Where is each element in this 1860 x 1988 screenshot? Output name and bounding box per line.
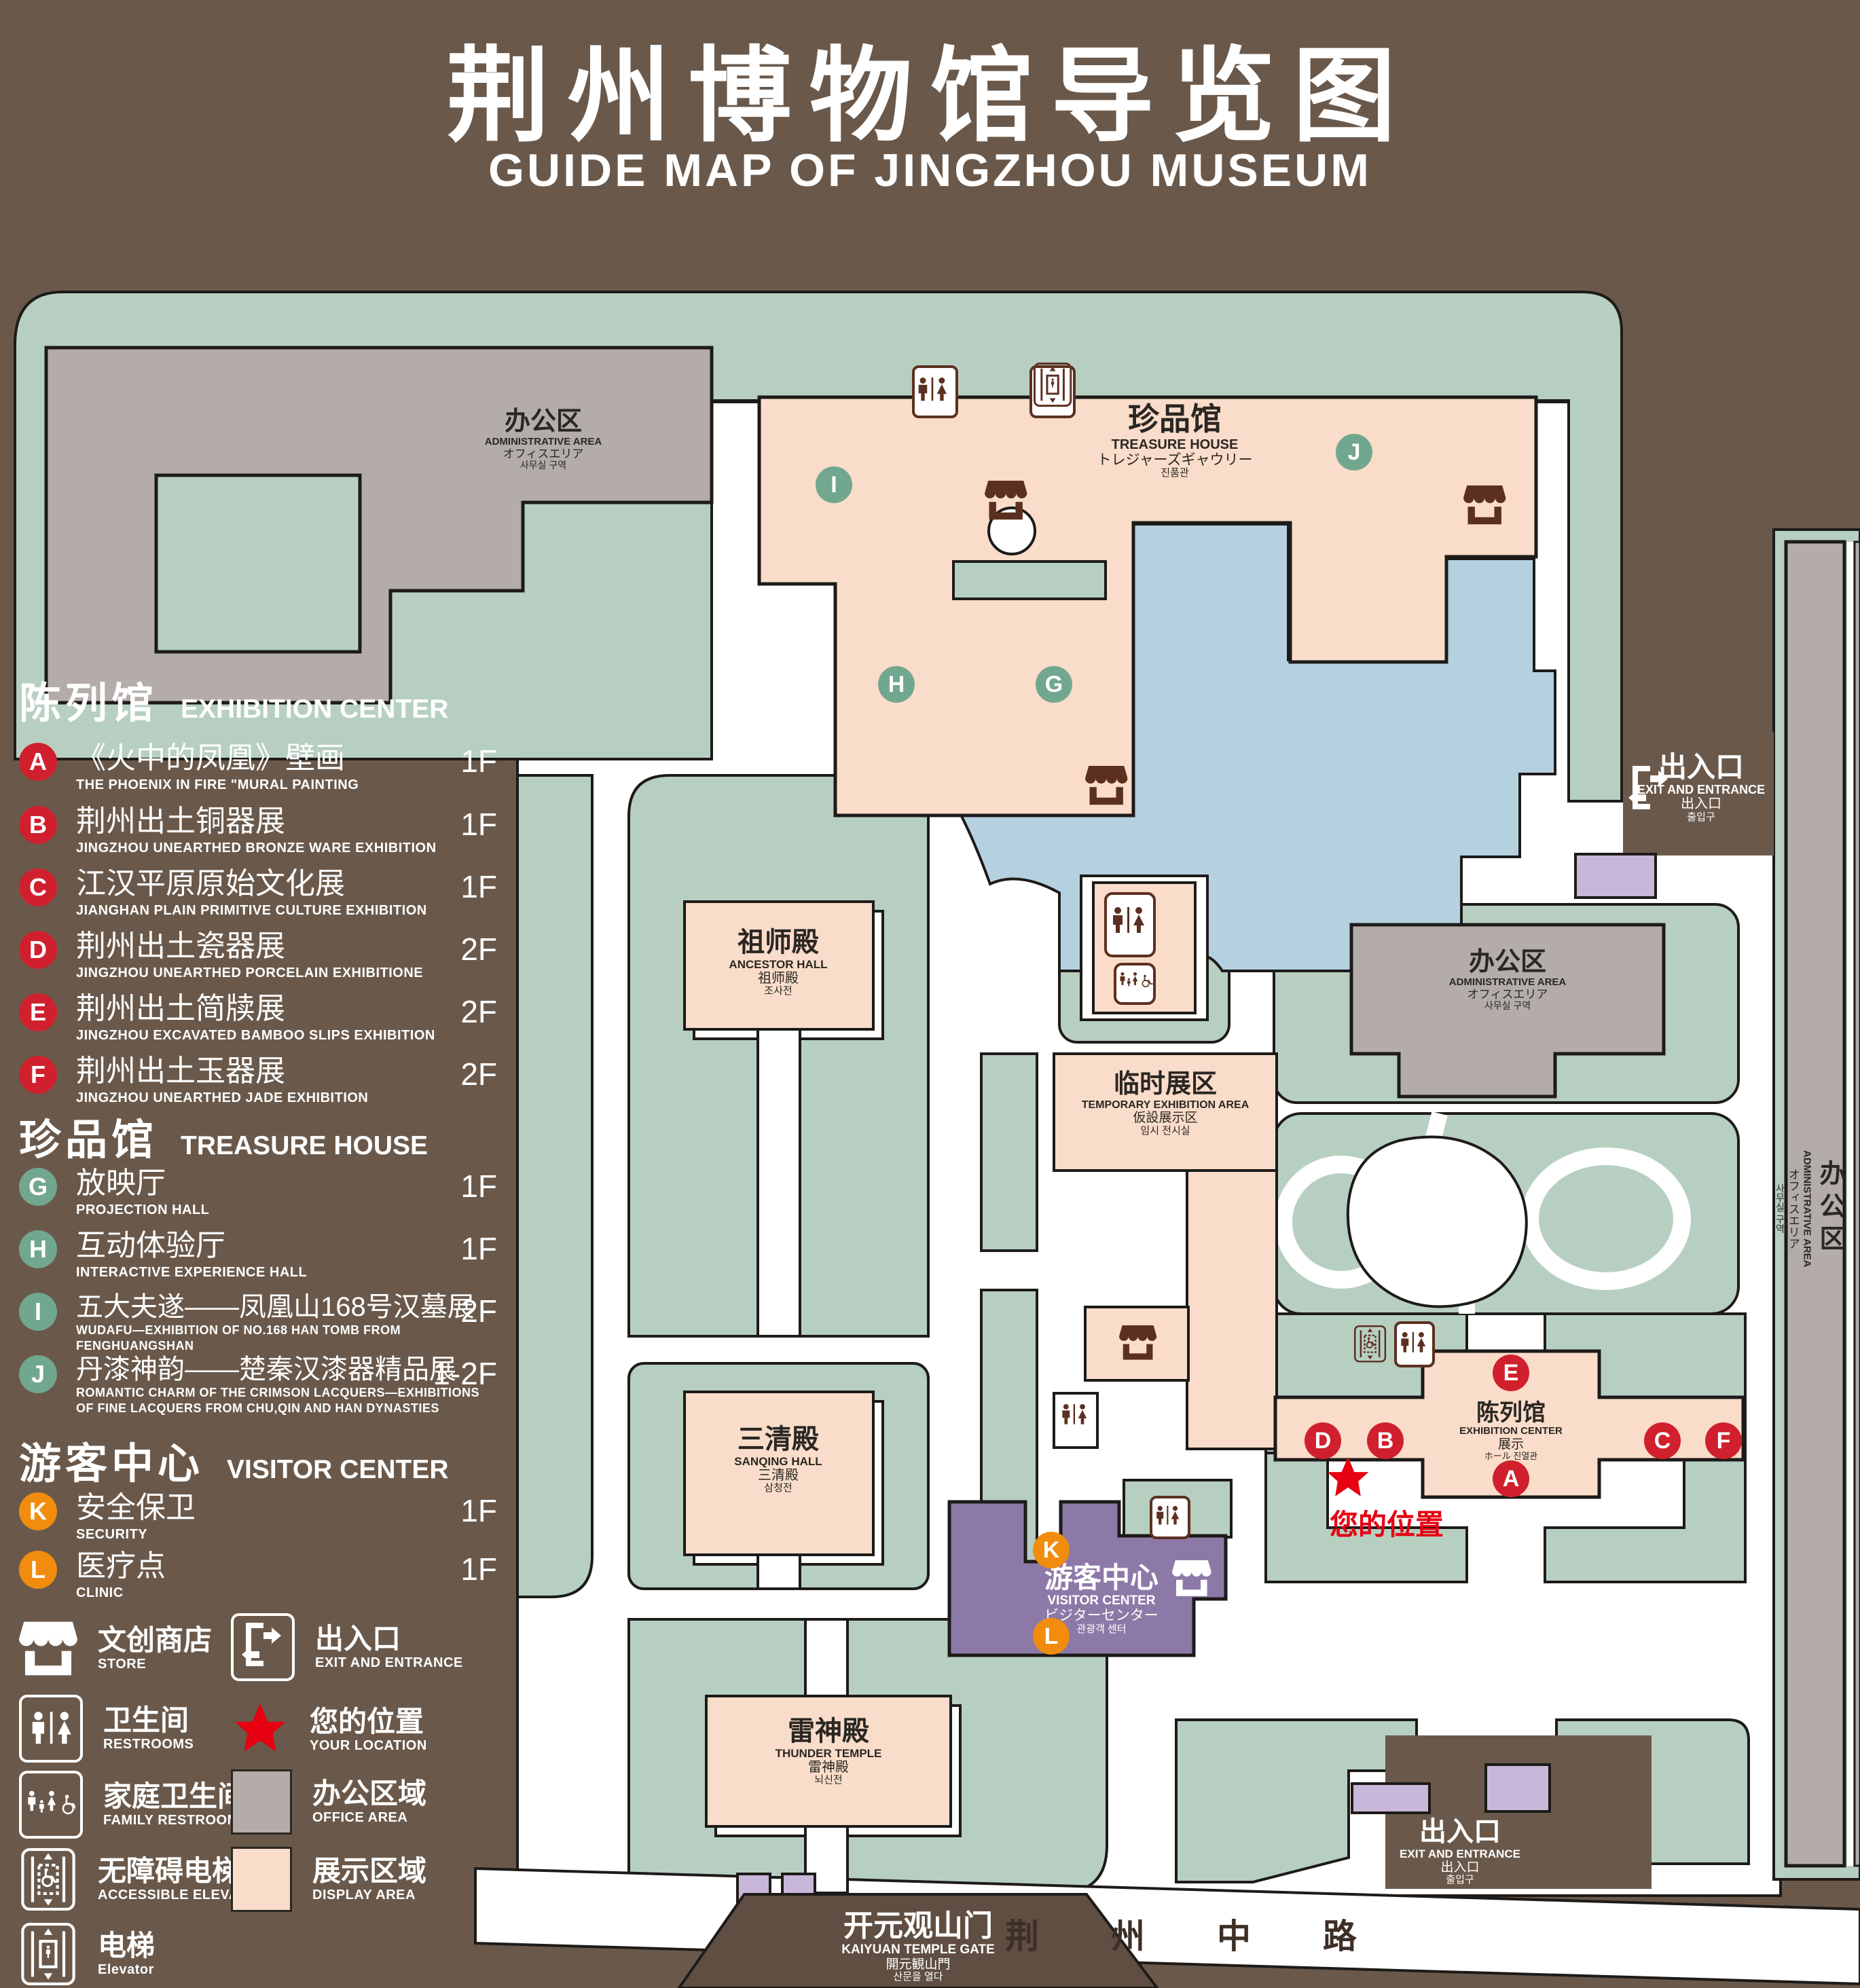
legend-item-h: H 互动体验厅INTERACTIVE EXPERIENCE HALL 1F	[19, 1229, 501, 1281]
map-marker-j: J	[1336, 434, 1372, 471]
label-sanqing-hall: 三清殿 SANQING HALL 三清殿 삼청전	[734, 1424, 822, 1494]
legend-item-k: K 安全保卫SECURITY 1F	[19, 1491, 501, 1543]
restroom-icon	[1062, 1404, 1087, 1424]
legend-item-j: J 丹漆神韵——楚秦汉漆器精品展 ROMANTIC CHARM OF THE C…	[19, 1354, 501, 1417]
label-ancestor-hall: 祖师殿 ANCESTOR HALL 祖师殿 조사전	[729, 927, 827, 997]
map-marker-d: D	[1305, 1422, 1341, 1459]
legend-item-l: L 医疗点CLINIC 1F	[19, 1549, 501, 1602]
map-marker-h: H	[878, 666, 915, 703]
label-thunder-temple: 雷神殿 THUNDER TEMPLE 雷神殿 뇌신전	[776, 1716, 882, 1786]
display-area-swatch	[231, 1848, 292, 1911]
map-marker-g: G	[1036, 666, 1072, 703]
legend-item-b: B 荆州出土铜器展JINGZHOU UNEARTHED BRONZE WARE …	[19, 805, 501, 857]
label-gate: 开元观山门 KAIYUAN TEMPLE GATE 開元観山門 산문을 열다	[841, 1909, 995, 1983]
label-admin-strip: 办公区 ADMINISTRATIVE AREA オフィスエリア 사무실 구역	[1774, 971, 1845, 1446]
page-title: 荆州博物馆导览图	[0, 12, 1860, 162]
page-subtitle: GUIDE MAP OF JINGZHOU MUSEUM	[0, 144, 1860, 197]
your-location-label: 您的位置	[1330, 1502, 1444, 1543]
label-exit-east: 出入口 EXIT AND ENTRANCE 出入口 출입구	[1637, 751, 1765, 823]
restroom-icon	[1396, 1323, 1434, 1366]
map-marker-f: F	[1705, 1422, 1742, 1459]
legend-family-restrooms: 家庭卫生间FAMILY RESTROOMS	[19, 1771, 249, 1839]
label-admin-east: 办公区 ADMINISTRATIVE AREA オフィスエリア 사무실 구역	[1449, 948, 1567, 1012]
guide-map-poster: 荆州博物馆导览图 GUIDE MAP OF JINGZHOU MUSEUM 办公…	[0, 0, 1860, 1988]
label-exhibition-center: 陈列馆 EXHIBITION CENTER 展示 ホール 진열관	[1459, 1400, 1563, 1462]
road-label: 荆 州 中 路	[1005, 1909, 1388, 1958]
restroom-icon	[913, 367, 957, 417]
map-marker-e: E	[1493, 1355, 1529, 1391]
legend-item-c: C 江汉平原原始文化展JIANGHAN PLAIN PRIMITIVE CULT…	[19, 867, 501, 919]
map-marker-a: A	[1493, 1460, 1529, 1497]
office-area-swatch	[231, 1771, 292, 1833]
map-marker-c: C	[1644, 1422, 1681, 1459]
exit-icon	[231, 1613, 295, 1681]
your-location-star-icon	[231, 1699, 289, 1761]
legend-item-i: I 五大夫遂——凤凰山168号汉墓展WUDAFU—EXHIBITION OF N…	[19, 1291, 501, 1355]
legend-display-area: 展示区域DISPLAY AREA	[231, 1848, 426, 1911]
legend-restrooms: 卫生间RESTROOMS	[19, 1695, 194, 1763]
accessible-elevator-icon	[19, 1848, 77, 1911]
family-restroom-icon	[1115, 964, 1154, 1004]
store-icon	[19, 1617, 77, 1680]
legend-elevator: 电梯Elevator	[19, 1923, 155, 1985]
legend-accessible-elevator: 无障碍电梯ACCESSIBLE ELEVATOR	[19, 1848, 268, 1911]
legend-item-a: A 《火中的凤凰》壁画THE PHOENIX IN FIRE "MURAL PA…	[19, 741, 501, 794]
label-treasure-house: 珍品馆 TREASURE HOUSE トレジャーズギャウリー 진품관	[1097, 402, 1253, 479]
legend-section-treasure: 珍品馆TREASURE HOUSE	[19, 1105, 428, 1166]
legend-store: 文创商店STORE	[19, 1617, 212, 1680]
label-admin-nw: 办公区 ADMINISTRATIVE AREA オフィスエリア 사무실 구역	[485, 407, 602, 471]
map-marker-b: B	[1367, 1422, 1404, 1459]
legend-office-area: 办公区域OFFICE AREA	[231, 1771, 426, 1833]
map-marker-l: L	[1033, 1618, 1070, 1655]
elevator-icon	[19, 1923, 77, 1985]
map-marker-k: K	[1033, 1532, 1070, 1568]
legend-section-exhibition: 陈列馆EXHIBITION CENTER	[19, 669, 448, 730]
legend-item-e: E 荆州出土简牍展JINGZHOU EXCAVATED BAMBOO SLIPS…	[19, 992, 501, 1044]
label-exit-south: 出入口 EXIT AND ENTRANCE 出入口 출입구	[1400, 1817, 1520, 1886]
legend-item-d: D 荆州出土瓷器展JINGZHOU UNEARTHED PORCELAIN EX…	[19, 929, 501, 982]
legend-section-visitor: 游客中心VISITOR CENTER	[19, 1429, 449, 1490]
legend-exit: 出入口EXIT AND ENTRANCE	[231, 1613, 463, 1681]
map-marker-i: I	[816, 466, 852, 503]
elevator-icon	[1031, 363, 1074, 417]
legend-item-g: G 放映厅PROJECTION HALL 1F	[19, 1166, 501, 1219]
restroom-icon	[1151, 1497, 1189, 1538]
legend-your-location: 您的位置YOUR LOCATION	[231, 1699, 427, 1761]
label-temporary-exhibition: 临时展区 TEMPORARY EXHIBITION AREA 仮設展示区 임시 …	[1082, 1070, 1250, 1137]
family-restroom-icon	[19, 1771, 83, 1839]
restroom-icon	[1106, 894, 1154, 956]
restroom-icon	[19, 1695, 83, 1763]
legend-item-f: F 荆州出土玉器展JINGZHOU UNEARTHED JADE EXHIBIT…	[19, 1054, 501, 1107]
